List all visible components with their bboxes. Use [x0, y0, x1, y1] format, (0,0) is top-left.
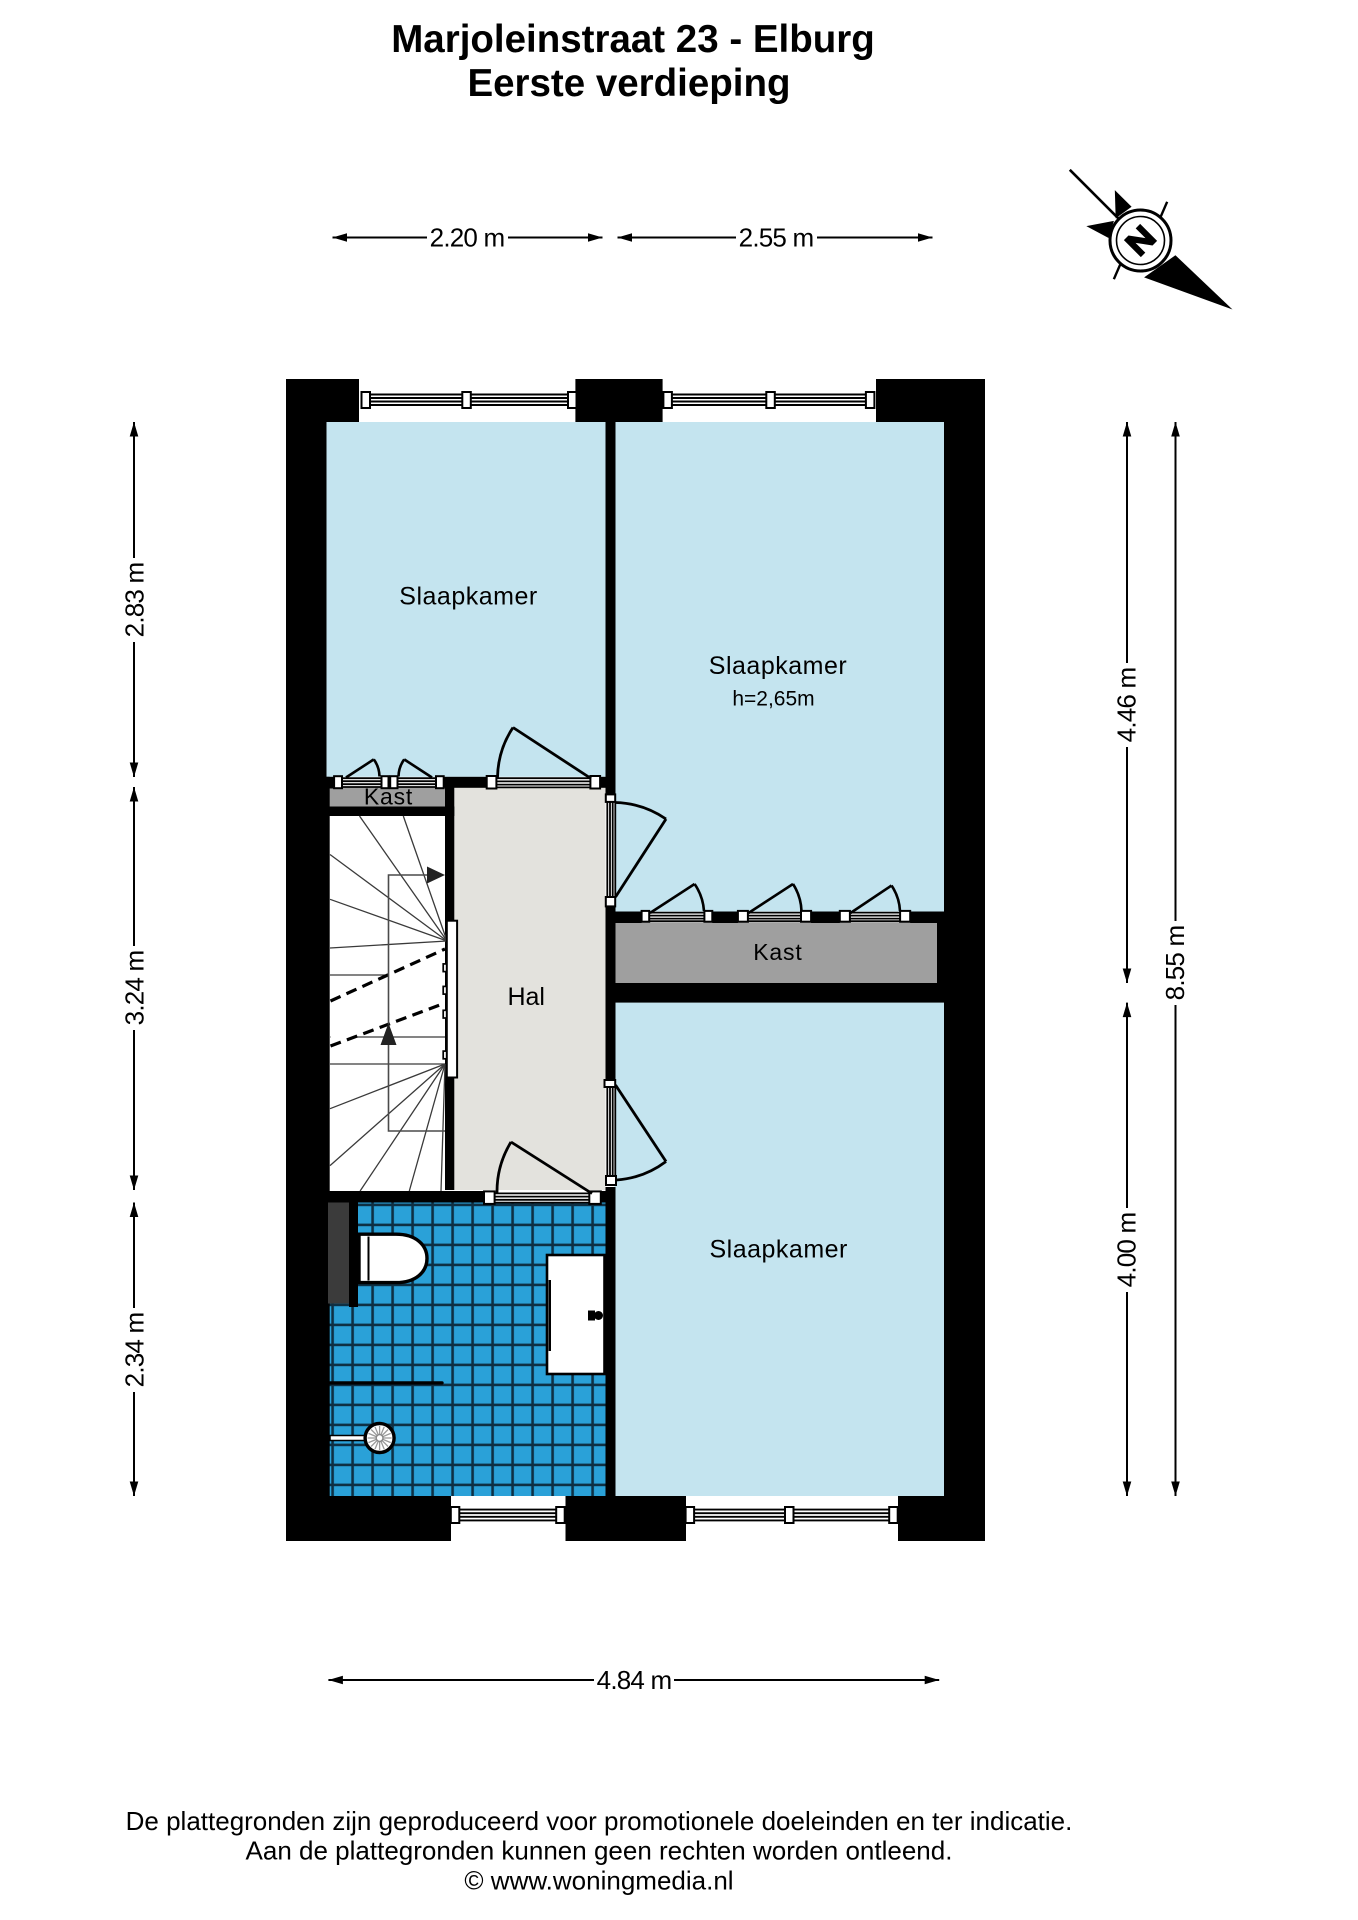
svg-text:Slaapkamer: Slaapkamer — [709, 652, 847, 680]
svg-text:4.84 m: 4.84 m — [597, 1665, 672, 1695]
svg-text:Hal: Hal — [507, 983, 545, 1011]
svg-text:Kast: Kast — [364, 784, 413, 810]
svg-text:Slaapkamer: Slaapkamer — [399, 583, 537, 611]
svg-text:3.24 m: 3.24 m — [120, 951, 150, 1026]
svg-text:8.55 m: 8.55 m — [1160, 926, 1190, 1001]
svg-text:Eerste verdieping: Eerste verdieping — [467, 62, 790, 105]
svg-text:© www.woningmedia.nl: © www.woningmedia.nl — [464, 1866, 733, 1896]
svg-text:2.83 m: 2.83 m — [120, 563, 150, 638]
svg-text:Marjoleinstraat 23 - Elburg: Marjoleinstraat 23 - Elburg — [391, 18, 875, 61]
svg-text:2.55 m: 2.55 m — [739, 223, 814, 253]
svg-text:De plattegronden zijn geproduc: De plattegronden zijn geproduceerd voor … — [126, 1806, 1073, 1836]
svg-text:2.34 m: 2.34 m — [120, 1313, 150, 1388]
svg-text:h=2,65m: h=2,65m — [732, 688, 814, 711]
svg-text:Slaapkamer: Slaapkamer — [709, 1235, 847, 1263]
svg-text:4.00 m: 4.00 m — [1112, 1213, 1142, 1288]
svg-text:4.46 m: 4.46 m — [1112, 668, 1142, 743]
svg-text:Kast: Kast — [753, 939, 802, 965]
svg-text:Aan de plattegronden kunnen ge: Aan de plattegronden kunnen geen rechten… — [246, 1836, 953, 1866]
svg-text:2.20 m: 2.20 m — [430, 223, 505, 253]
